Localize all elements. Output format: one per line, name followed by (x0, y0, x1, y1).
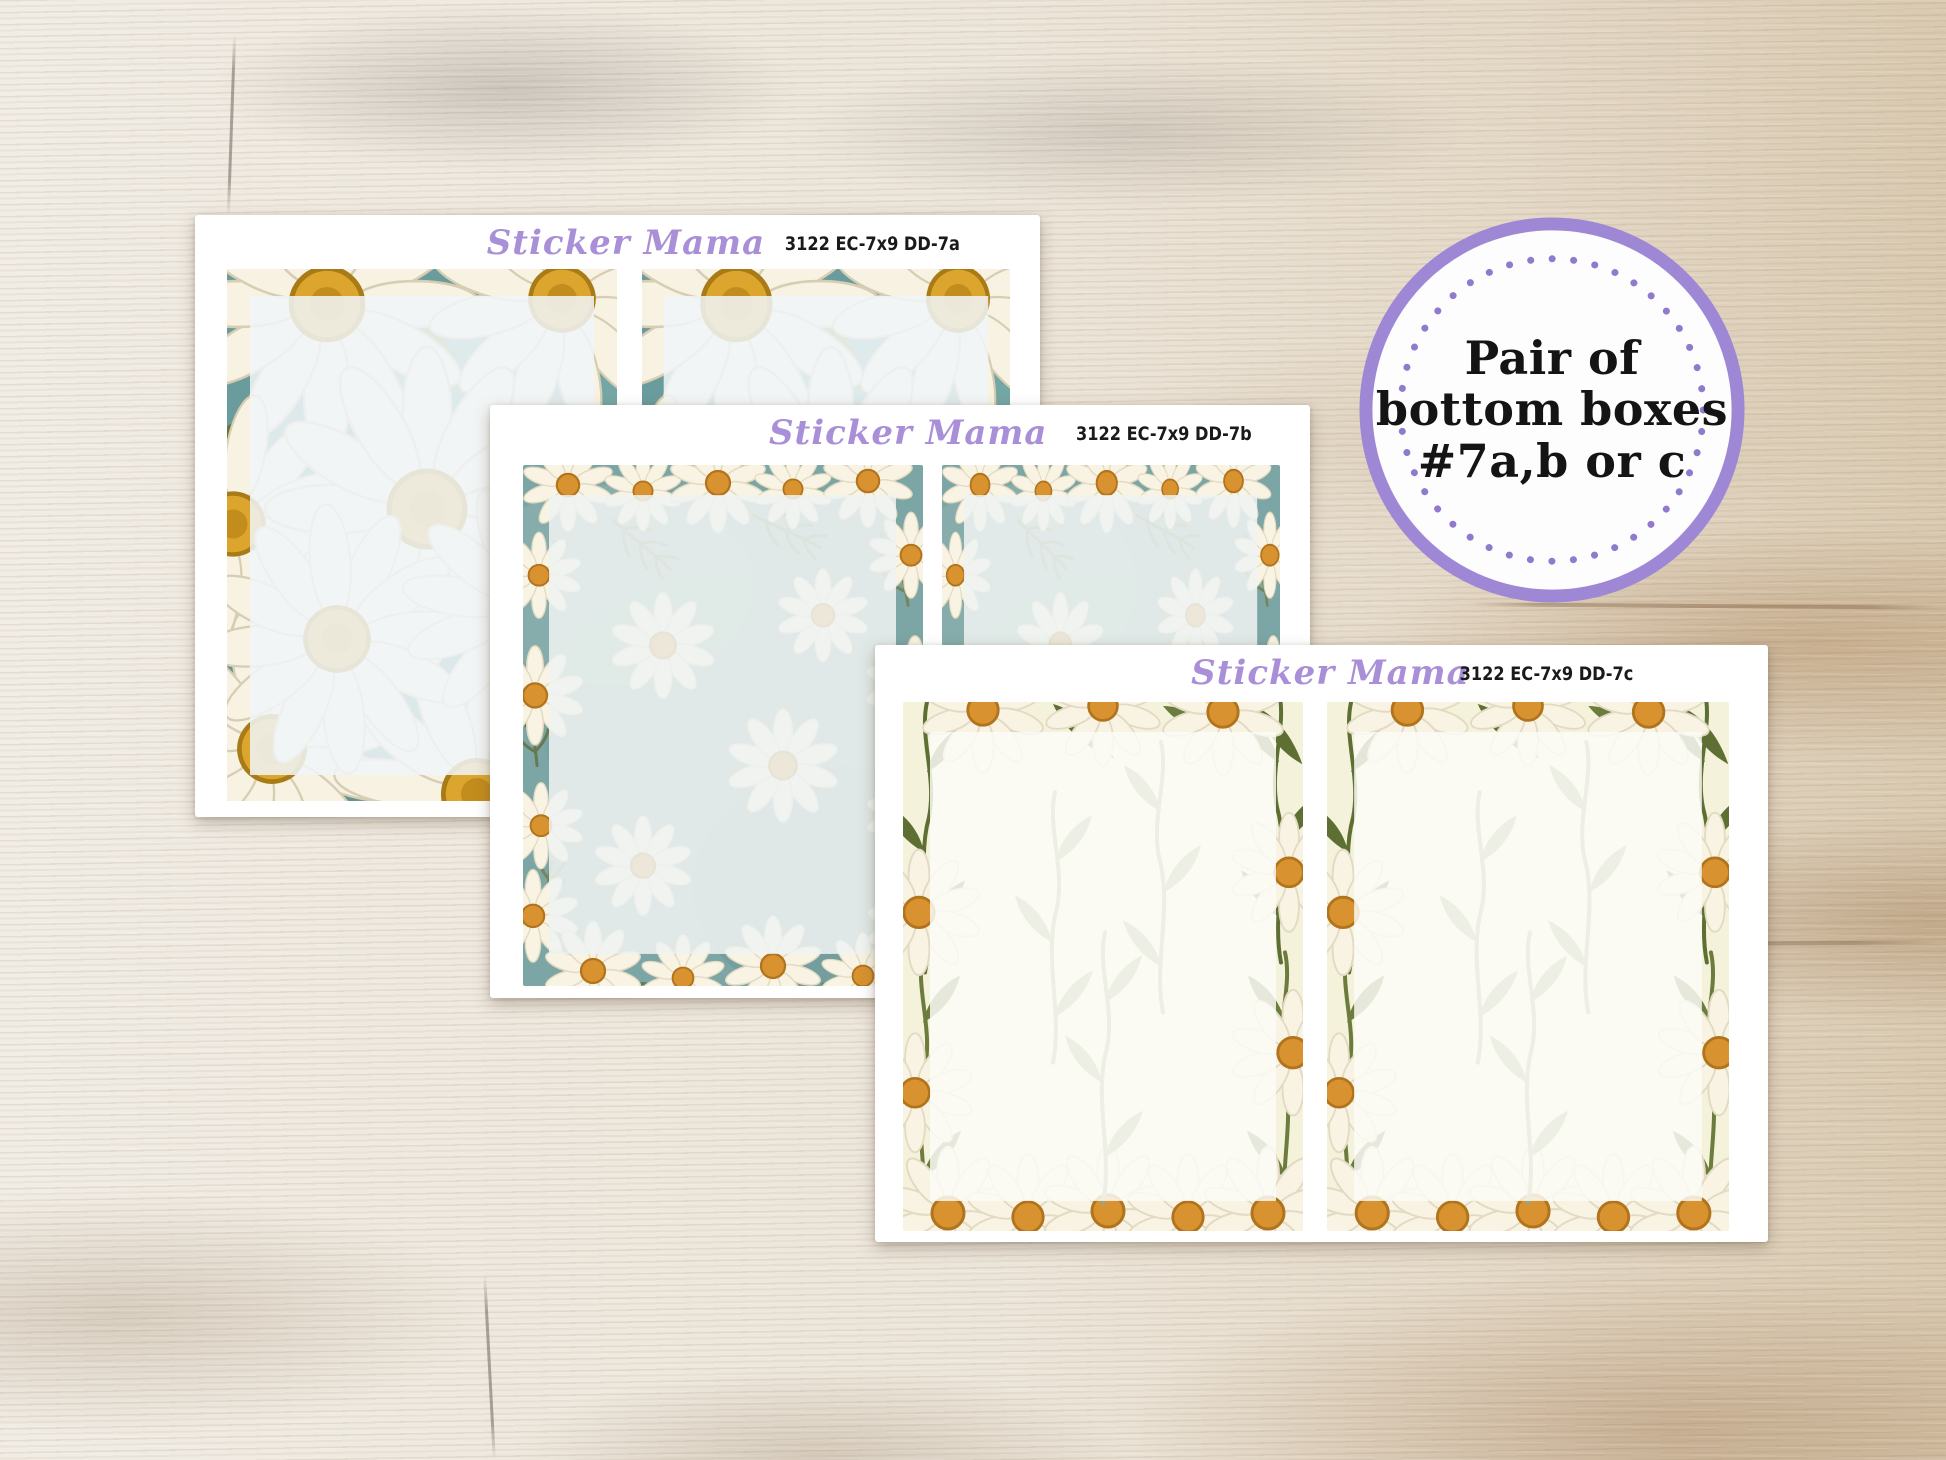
sheet-header: Sticker Mama 3122 EC-7x9 DD-7a (195, 215, 1040, 271)
product-photo: Sticker Mama 3122 EC-7x9 DD-7a Sticker M… (0, 0, 1946, 1460)
sticker-box-daisy-stem (903, 702, 1303, 1231)
sheet-code: 3122 EC-7x9 DD-7c (1459, 663, 1633, 685)
sheet-code: 3122 EC-7x9 DD-7b (1076, 423, 1252, 445)
sticker-box-wild-daisy (523, 465, 923, 986)
badge-text: Pair of bottom boxes #7a,b or c (1358, 216, 1746, 604)
badge-text-line: #7a,b or c (1418, 436, 1687, 488)
badge-text-line: bottom boxes (1376, 384, 1728, 436)
sheet-code: 3122 EC-7x9 DD-7a (785, 233, 960, 255)
info-badge: Pair of bottom boxes #7a,b or c (1358, 216, 1746, 604)
sticker-box-daisy-stem (1327, 702, 1729, 1231)
brand-logo: Sticker Mama (487, 223, 766, 263)
badge-text-line: Pair of (1465, 333, 1640, 385)
wood-crack (483, 1275, 496, 1460)
sticker-sheet-7c: Sticker Mama 3122 EC-7x9 DD-7c (875, 645, 1768, 1242)
sheet-header: Sticker Mama 3122 EC-7x9 DD-7b (490, 405, 1310, 461)
sheet-header: Sticker Mama 3122 EC-7x9 DD-7c (875, 645, 1768, 701)
brand-logo: Sticker Mama (769, 413, 1048, 453)
wood-crack (227, 35, 236, 215)
brand-logo: Sticker Mama (1191, 653, 1470, 693)
